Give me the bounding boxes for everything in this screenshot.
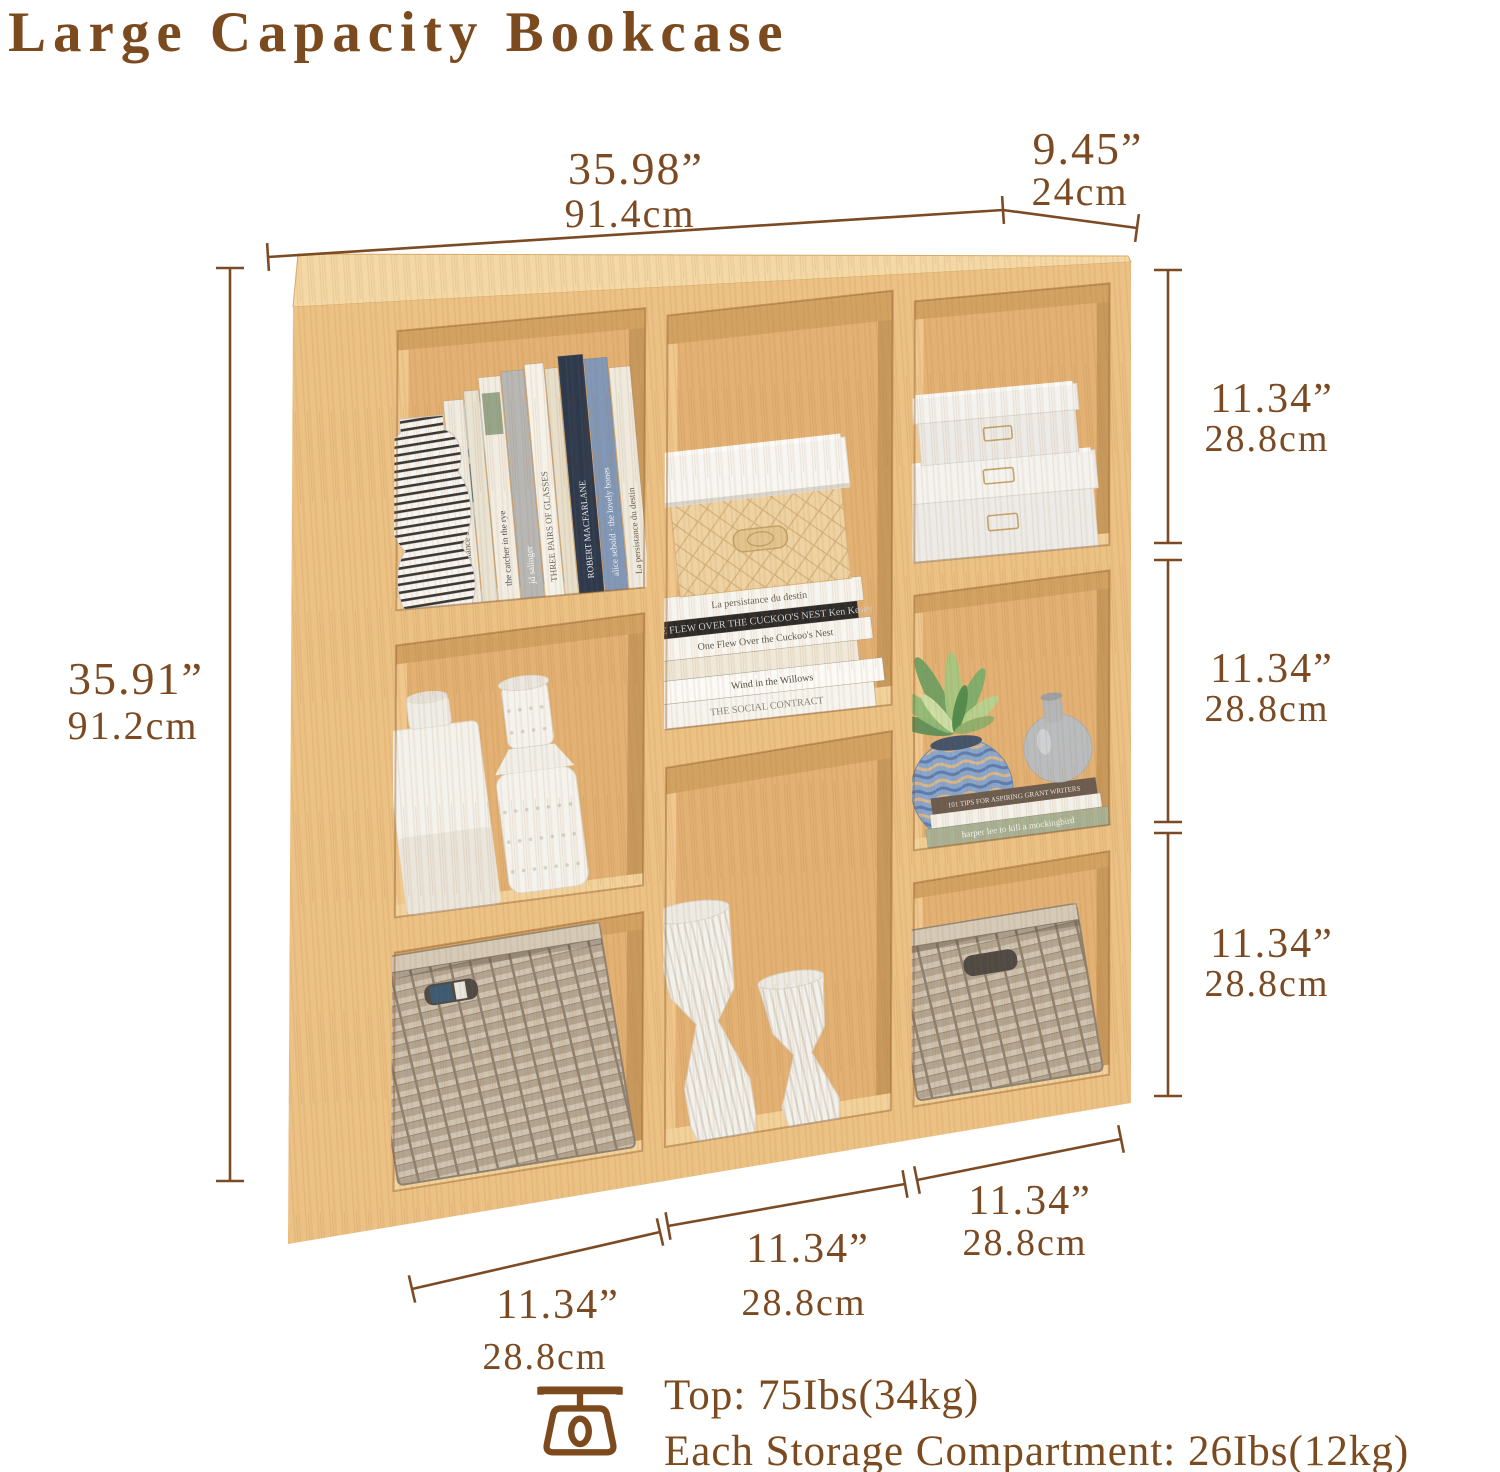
quilted-box [655,433,860,598]
product-infographic: La persistance du destinthe catcher in t… [0,0,1500,1472]
compartment-capacity-label: Each Storage Compartment: 26Ibs(12kg) [664,1430,1409,1472]
dim-cell-right-2-in: 11.34” [1210,648,1334,690]
page-title: Large Capacity Bookcase [8,0,790,65]
storage-basket [362,923,635,1186]
dim-height-in: 35.91” [68,656,204,702]
dim-width-cm: 91.4cm [565,194,696,234]
dim-cell-bottom-1-in: 11.34” [496,1284,620,1326]
dim-cell-right-1-in: 11.34” [1210,378,1334,420]
dim-cell-right-3-in: 11.34” [1210,923,1334,965]
bookcase: La persistance du destinthe catcher in t… [288,254,1131,1244]
dim-cell-right-2-cm: 28.8cm [1205,690,1330,728]
scale-icon [531,1384,629,1466]
dim-height-cm: 91.2cm [68,706,199,746]
dim-depth-in: 9.45” [1033,126,1144,172]
dim-width-in: 35.98” [568,146,704,192]
dim-cell-bottom-3-cm: 28.8cm [963,1224,1088,1262]
dim-cell-bottom-3-in: 11.34” [968,1180,1092,1222]
dim-cell-bottom-2-in: 11.34” [746,1228,870,1270]
book-stack: THE SOCIAL CONTRACTWind in the WillowsOn… [643,575,888,731]
dim-depth-cm: 24cm [1032,172,1129,212]
storage-basket [891,904,1104,1101]
top-capacity-label: Top: 75Ibs(34kg) [664,1374,979,1417]
dim-cell-right-3-cm: 28.8cm [1205,965,1330,1003]
dim-cell-bottom-1-cm: 28.8cm [483,1338,608,1376]
dim-cell-right-1-cm: 28.8cm [1205,420,1330,458]
dim-cell-bottom-2-cm: 28.8cm [742,1284,867,1322]
storage-box [911,380,1083,466]
